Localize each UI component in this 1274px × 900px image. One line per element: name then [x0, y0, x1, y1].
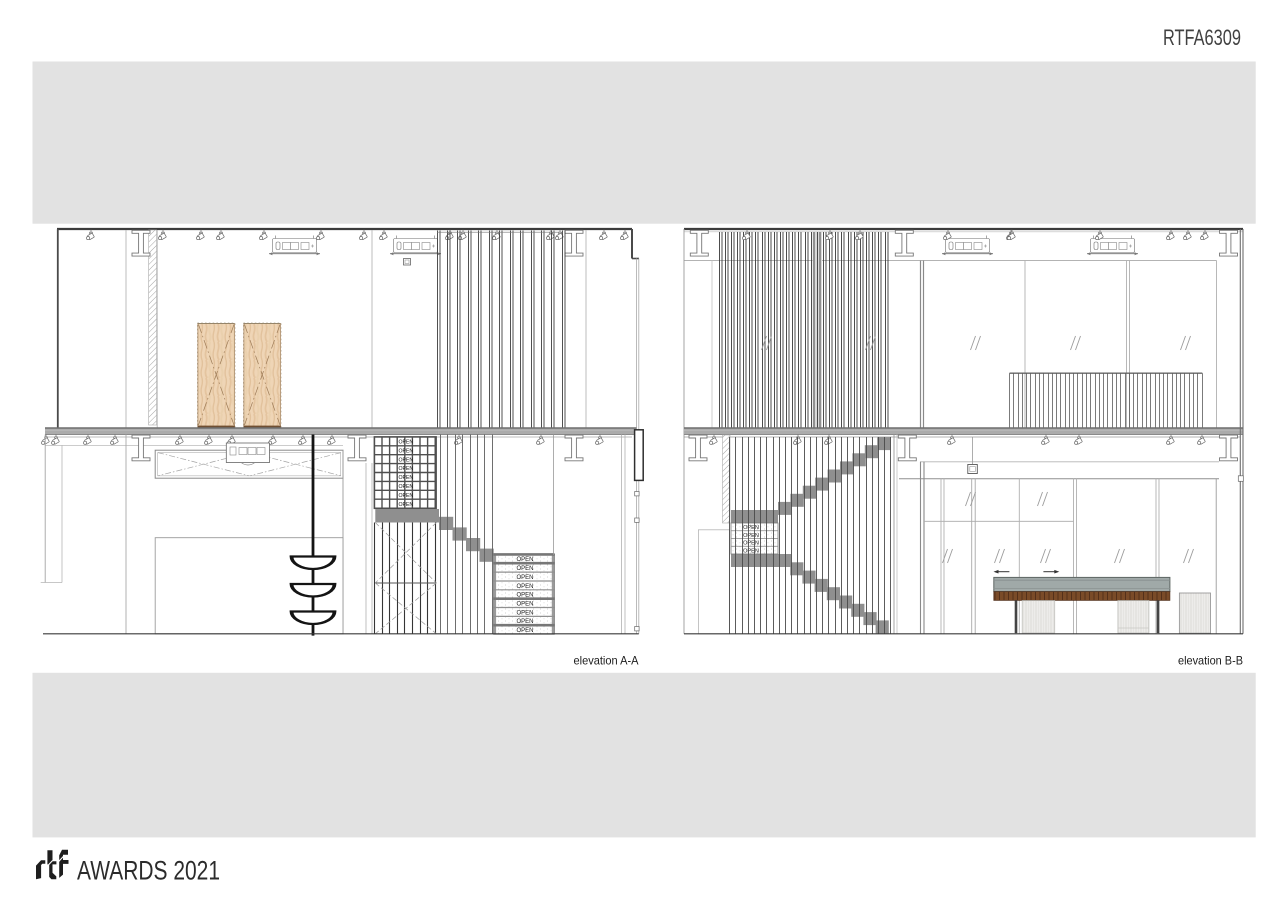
svg-text:OPEN: OPEN [743, 548, 759, 554]
svg-text:AWARDS 2021: AWARDS 2021 [77, 856, 220, 886]
svg-text:OPEN: OPEN [398, 440, 413, 446]
svg-text:OPEN: OPEN [398, 484, 413, 490]
svg-text:RTFA6309: RTFA6309 [1163, 25, 1241, 50]
svg-text:OPEN: OPEN [516, 628, 533, 634]
svg-text:OPEN: OPEN [516, 619, 533, 625]
svg-text:OPEN: OPEN [516, 557, 533, 563]
svg-text:OPEN: OPEN [516, 566, 533, 572]
svg-text:elevation A-A: elevation A-A [574, 654, 639, 668]
svg-text:OPEN: OPEN [398, 457, 413, 463]
svg-text:OPEN: OPEN [516, 575, 533, 581]
svg-text:OPEN: OPEN [398, 466, 413, 472]
svg-text:OPEN: OPEN [743, 525, 759, 531]
svg-text:OPEN: OPEN [398, 475, 413, 481]
svg-text:OPEN: OPEN [743, 541, 759, 547]
svg-text:OPEN: OPEN [516, 593, 533, 599]
svg-text:elevation B-B: elevation B-B [1178, 654, 1243, 668]
svg-text:OPEN: OPEN [398, 502, 413, 508]
svg-text:OPEN: OPEN [398, 493, 413, 499]
svg-text:OPEN: OPEN [398, 448, 413, 454]
svg-text:OPEN: OPEN [516, 602, 533, 608]
svg-text:OPEN: OPEN [516, 610, 533, 616]
svg-text:OPEN: OPEN [516, 584, 533, 590]
svg-text:OPEN: OPEN [743, 533, 759, 539]
